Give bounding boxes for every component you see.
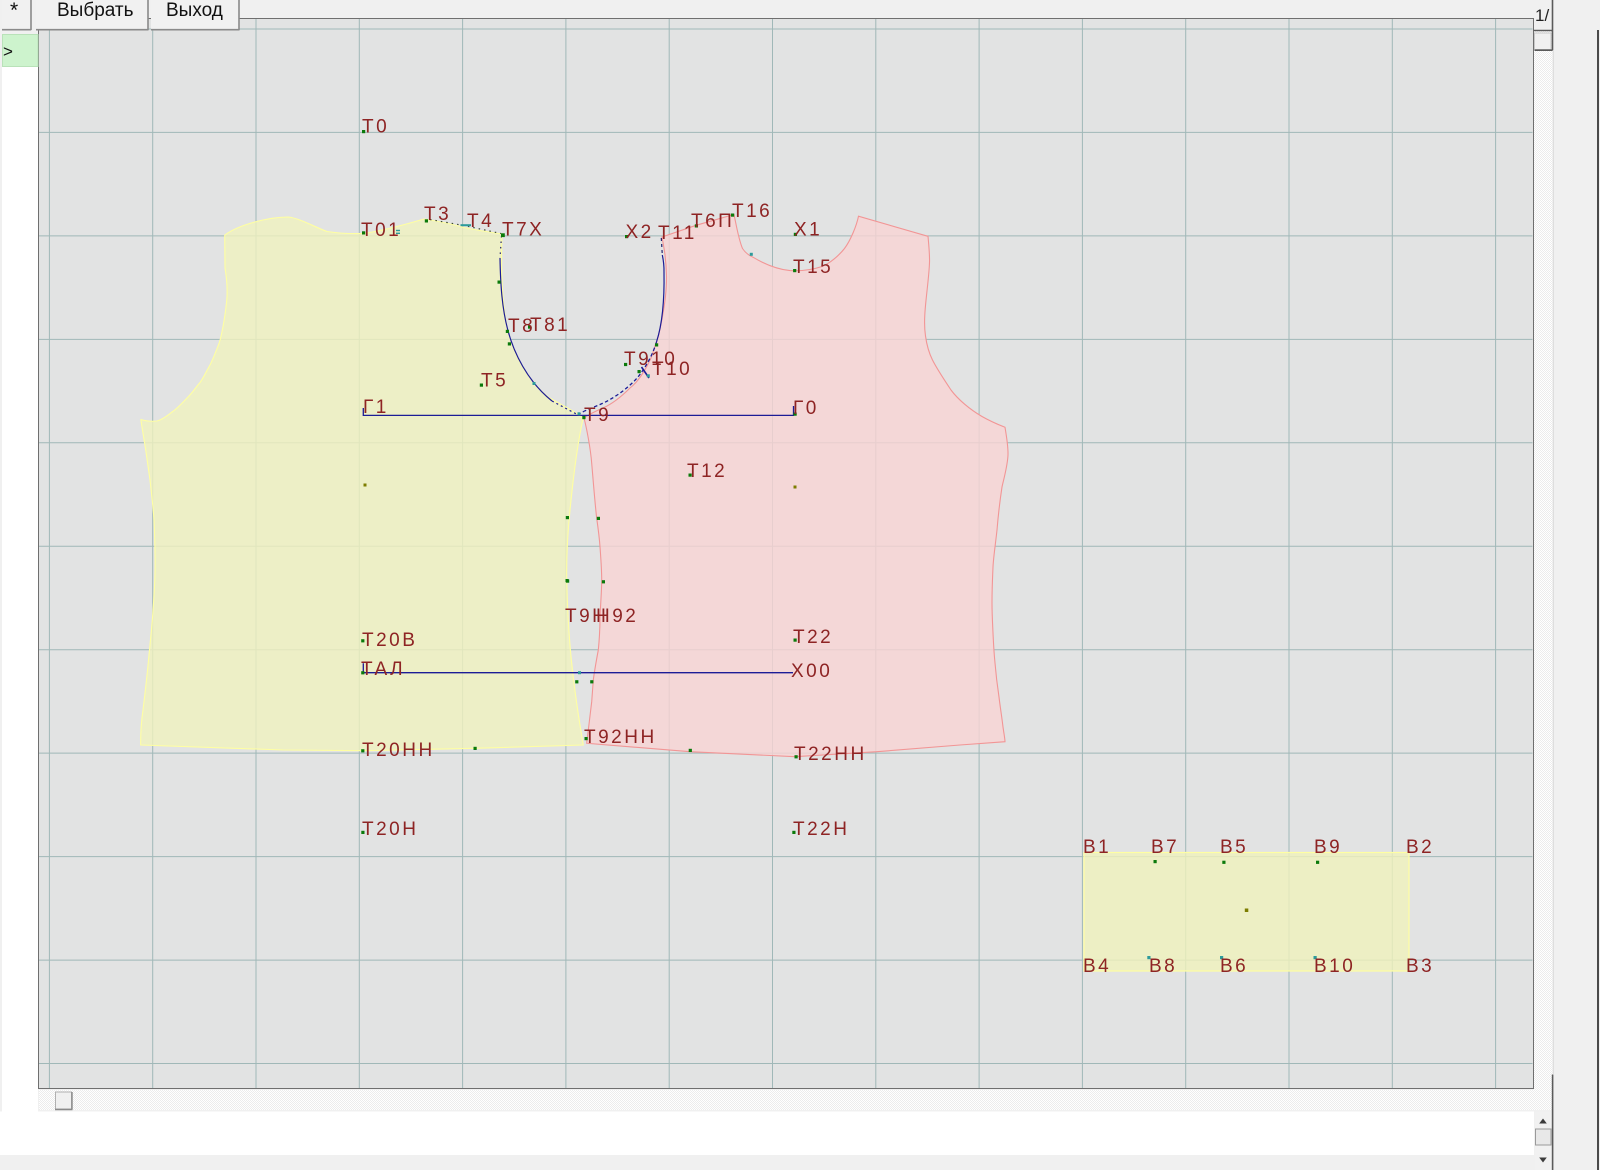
svg-text:Т6П: Т6П — [691, 211, 734, 232]
svg-text:*: * — [10, 0, 18, 22]
svg-text:В4: В4 — [1083, 956, 1111, 977]
svg-text:Т12: Т12 — [687, 461, 727, 482]
svg-text:Выход: Выход — [166, 0, 223, 21]
svg-text:Т81: Т81 — [530, 315, 570, 336]
svg-text:1/: 1/ — [1535, 6, 1549, 25]
svg-text:Т20Н: Т20Н — [362, 819, 418, 840]
svg-text:Т0: Т0 — [362, 117, 389, 138]
svg-text:В10: В10 — [1314, 956, 1355, 977]
svg-text:Т22: Т22 — [793, 627, 833, 648]
svg-text:Т20В: Т20В — [362, 630, 417, 651]
svg-text:Т92НН: Т92НН — [584, 727, 657, 748]
svg-text:Т01: Т01 — [361, 220, 401, 241]
svg-text:В9: В9 — [1314, 837, 1342, 858]
svg-text:Т10: Т10 — [652, 359, 692, 380]
svg-text:Т20НН: Т20НН — [362, 740, 435, 761]
svg-text:Г0: Г0 — [793, 398, 819, 419]
svg-text:Т16: Т16 — [732, 201, 772, 222]
svg-text:Т7Х: Т7Х — [502, 220, 544, 241]
svg-text:В1: В1 — [1083, 837, 1111, 858]
svg-text:Т22НН: Т22НН — [794, 744, 867, 765]
svg-text:Т9: Т9 — [584, 405, 611, 426]
svg-text:Выбрать: Выбрать — [57, 0, 134, 21]
svg-text:Т4: Т4 — [467, 211, 494, 232]
svg-text:Х1: Х1 — [794, 220, 822, 241]
svg-text:Н92: Н92 — [596, 606, 638, 627]
svg-text:В2: В2 — [1406, 837, 1434, 858]
svg-text:В3: В3 — [1406, 956, 1434, 977]
svg-text:В7: В7 — [1151, 837, 1179, 858]
svg-text:Т15: Т15 — [793, 257, 833, 278]
svg-text:Х2: Х2 — [626, 222, 654, 243]
svg-text:>: > — [3, 42, 13, 61]
svg-text:В5: В5 — [1220, 837, 1248, 858]
svg-text:Т5: Т5 — [481, 371, 508, 392]
svg-text:Т22Н: Т22Н — [793, 819, 849, 840]
svg-text:В8: В8 — [1149, 956, 1177, 977]
svg-text:Г1: Г1 — [363, 397, 389, 418]
svg-text:Т3: Т3 — [424, 204, 451, 225]
svg-text:В6: В6 — [1220, 956, 1248, 977]
svg-text:Х00: Х00 — [791, 661, 832, 682]
svg-text:ТАЛ: ТАЛ — [361, 659, 405, 680]
